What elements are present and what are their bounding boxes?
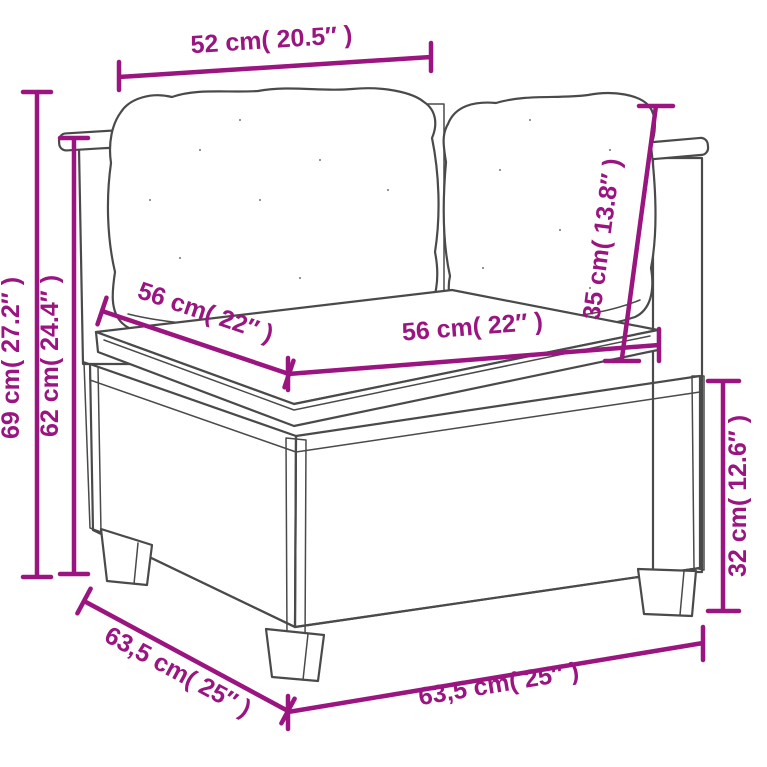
back-cushion-right bbox=[444, 93, 656, 329]
dimension-diagram-canvas: 52 cm( 20.5″ ) 69 cm( 27.2″ ) 62 cm( 24.… bbox=[0, 0, 767, 767]
dimension-base-width: 63,5 cm( 25″ ) bbox=[288, 627, 703, 729]
dimension-label-base-height: 32 cm( 12.6″ ) bbox=[724, 415, 752, 577]
dimension-label-overall-height: 69 cm( 27.2″ ) bbox=[0, 277, 25, 439]
sofa-leg-front bbox=[266, 629, 324, 681]
sofa-leg-right bbox=[638, 569, 696, 616]
sofa-leg-left bbox=[101, 529, 152, 585]
right-post-cap bbox=[645, 137, 708, 159]
corner-sofa-dimension-diagram: 52 cm( 20.5″ ) 69 cm( 27.2″ ) 62 cm( 24.… bbox=[0, 0, 767, 767]
dimension-label-backrest-height: 62 cm( 24.4″ ) bbox=[36, 275, 64, 437]
dimension-base-depth: 63,5 cm( 25″ ) bbox=[77, 589, 294, 724]
dimension-label-base-width: 63,5 cm( 25″ ) bbox=[416, 657, 580, 711]
dimension-label-pillow-width-top: 52 cm( 20.5″ ) bbox=[190, 21, 354, 59]
dimension-label-base-depth: 63,5 cm( 25″ ) bbox=[100, 621, 256, 723]
dimension-pillow-width-top: 52 cm( 20.5″ ) bbox=[119, 21, 431, 90]
dimension-base-height: 32 cm( 12.6″ ) bbox=[708, 381, 752, 611]
base-bottom-edge bbox=[93, 530, 700, 627]
